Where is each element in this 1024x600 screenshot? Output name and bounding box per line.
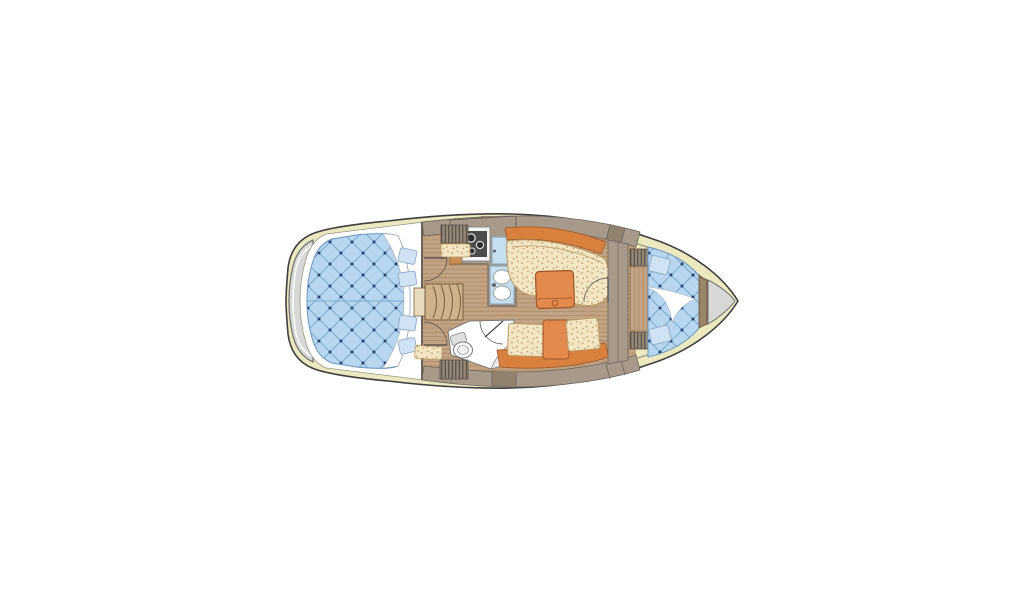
aft-pillow: [398, 337, 418, 354]
floor-plan-canvas: [0, 0, 1024, 600]
bow-bulkhead: [699, 276, 707, 328]
sink-faucet: [492, 283, 496, 287]
aft-pillow: [398, 247, 418, 264]
aft-double-cabin: [300, 222, 424, 380]
sink-basin: [494, 286, 511, 300]
folding-table: [543, 320, 569, 359]
boat-floor-plan: [0, 0, 1024, 600]
bottom-locker-dark-segment: [492, 372, 516, 387]
port-settee-cushion: [566, 318, 601, 352]
icebox-latch: [493, 250, 496, 253]
straight-settee: [497, 318, 609, 369]
hatched-locker: [440, 360, 468, 379]
aft-pillow: [398, 315, 417, 331]
seat-cushion: [415, 345, 443, 359]
v-berth-cabin: [630, 247, 735, 357]
port-settee-cushion: [507, 323, 544, 356]
saloon-table-handle: [552, 300, 558, 306]
toilet-bowl-inner: [458, 346, 469, 355]
companionway-entry: [414, 288, 425, 316]
aft-pillow: [398, 271, 417, 287]
stove-burner: [476, 241, 483, 248]
hatched-locker: [441, 225, 468, 243]
seat-cushion: [441, 244, 470, 257]
sink-basin: [494, 270, 511, 284]
